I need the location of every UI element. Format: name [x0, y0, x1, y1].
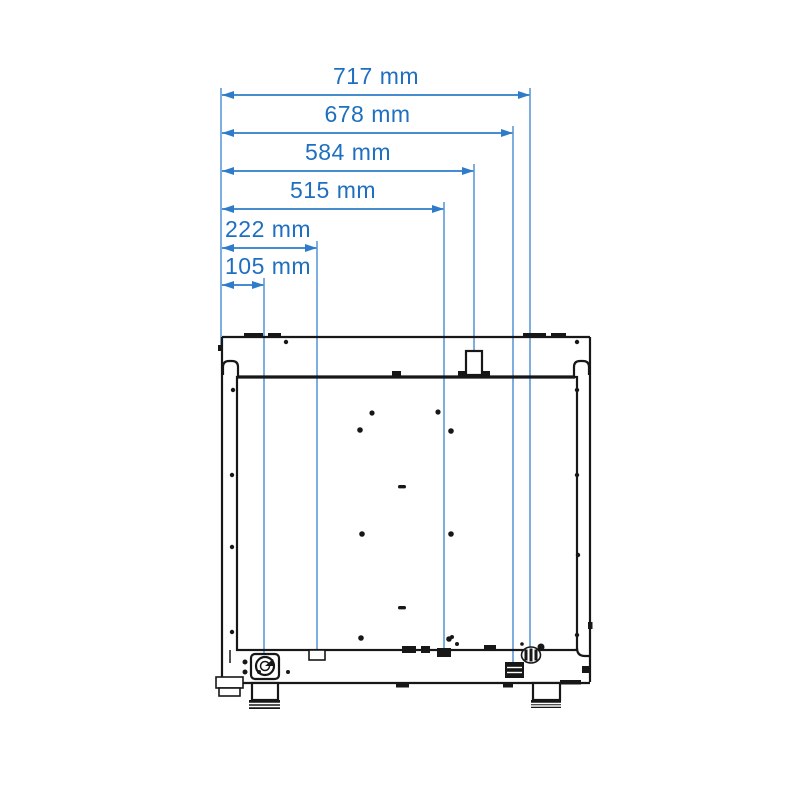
arrowhead-left-icon [222, 129, 234, 137]
arrowhead-left-icon [222, 91, 234, 99]
arrowhead-right-icon [501, 129, 513, 137]
arrowhead-right-icon [432, 205, 444, 213]
top-right-hook-bracket [574, 361, 589, 378]
arrowhead-left-icon [222, 281, 234, 289]
arrowhead-right-icon [252, 281, 264, 289]
top-edge-tabs [218, 333, 579, 376]
dimension-label: 717 mm [333, 63, 419, 89]
terminal-block [505, 662, 524, 678]
small-connector [437, 648, 451, 657]
power-connector [243, 654, 291, 679]
screw-dots [230, 388, 580, 646]
top-left-hook-bracket [223, 361, 238, 378]
left-foot [249, 683, 280, 709]
dimension-label: 105 mm [225, 253, 311, 279]
gas-connector [520, 642, 544, 663]
arrowhead-right-icon [518, 91, 530, 99]
left-wall-bracket [216, 677, 243, 696]
arrowhead-left-icon [222, 205, 234, 213]
chimney-vent [458, 351, 490, 376]
mounting-tab [309, 650, 325, 660]
dimension-label: 222 mm [225, 216, 311, 242]
dimension-label: 584 mm [305, 139, 391, 165]
arrowhead-left-icon [222, 167, 234, 175]
arrowhead-right-icon [462, 167, 474, 175]
dimension-label: 515 mm [290, 177, 376, 203]
arrowhead-left-icon [222, 244, 234, 252]
dimension-label: 678 mm [324, 101, 410, 127]
right-foot [531, 683, 561, 708]
appliance-body-outline [218, 337, 590, 683]
arrowhead-right-icon [305, 244, 317, 252]
dimension-678mm [222, 126, 513, 666]
technical-drawing-canvas: 717 mm678 mm584 mm515 mm222 mm105 mm [0, 0, 800, 800]
